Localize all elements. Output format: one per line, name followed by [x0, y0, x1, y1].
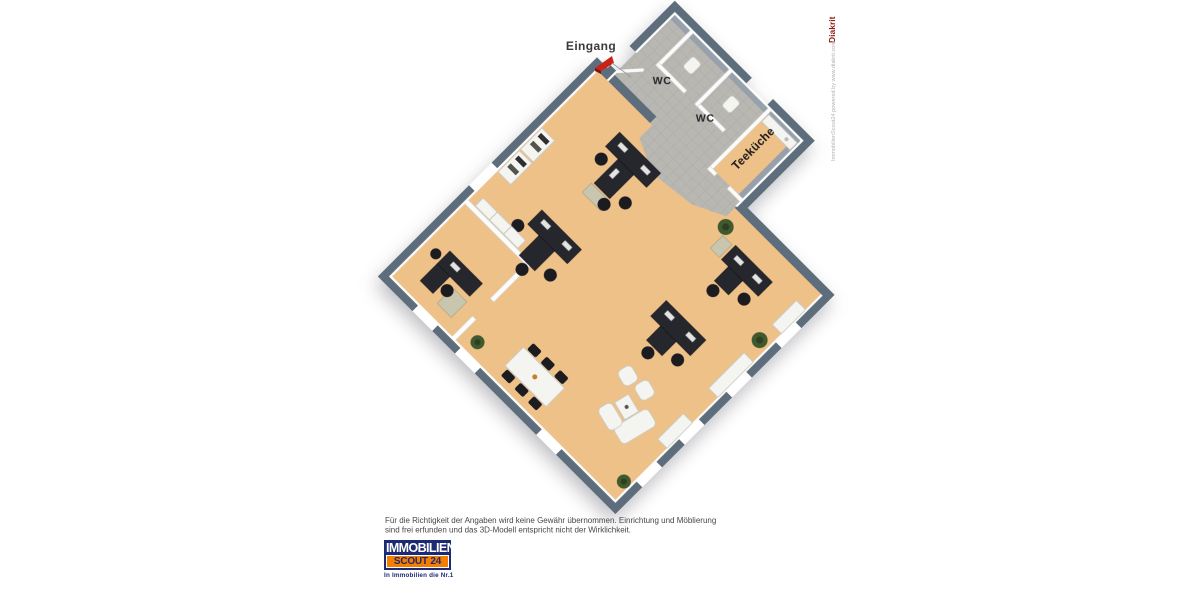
- room-label-wc-1: WC: [653, 75, 672, 87]
- building-plan: WC WC Teeküche: [378, 0, 902, 514]
- watermark-diakrit: Diakrit: [827, 16, 837, 43]
- floorplan-page: WC WC Teeküche Eingang Für die Richtigke…: [0, 0, 1200, 600]
- room-label-wc-2: WC: [696, 113, 715, 125]
- entrance-label: Eingang: [566, 39, 616, 53]
- floorplan-svg: WC WC Teeküche Eingang Für die Richtigke…: [0, 0, 1200, 600]
- immobilienscout24-logo: IMMOBILIEN SCOUT 24 In Immobilien die Nr…: [384, 540, 451, 580]
- disclaimer-line-2: sind frei erfunden und das 3D-Modell ent…: [385, 526, 631, 535]
- watermark-credit: ImmobilienScout24 powered by www.diakrit…: [831, 41, 837, 161]
- disclaimer-line-1: Für die Richtigkeit der Angaben wird kei…: [385, 516, 716, 525]
- logo-scout24-text: SCOUT 24: [386, 555, 449, 568]
- logo-immobilien-text: IMMOBILIEN: [386, 541, 449, 555]
- logo-tagline: In Immobilien die Nr.1: [384, 572, 451, 580]
- logo-box: IMMOBILIEN SCOUT 24: [384, 540, 451, 570]
